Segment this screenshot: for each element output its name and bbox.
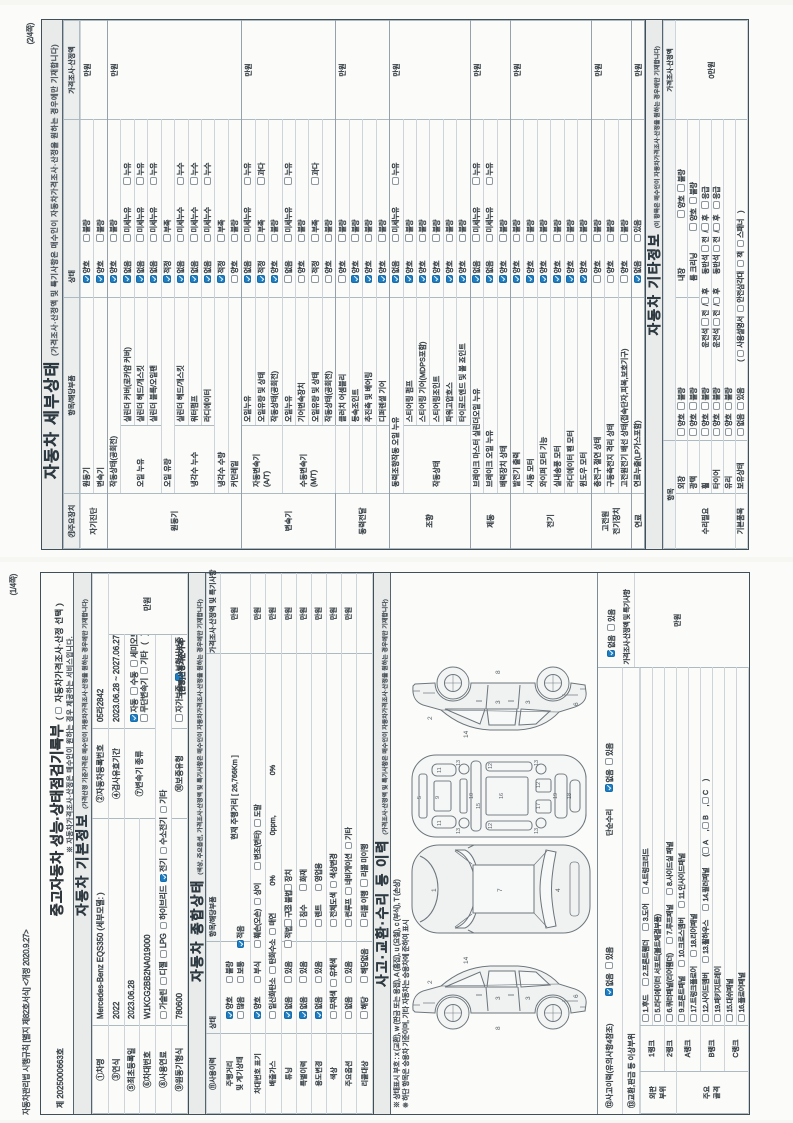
svg-text:12: 12	[536, 782, 542, 788]
svg-text:5: 5	[417, 796, 423, 799]
svg-text:11: 11	[437, 767, 443, 773]
svg-text:13: 13	[534, 760, 540, 766]
svg-text:9: 9	[435, 796, 441, 799]
svg-text:3: 3	[495, 996, 502, 1000]
svg-text:15: 15	[476, 803, 482, 809]
svg-text:4: 4	[555, 888, 562, 892]
svg-text:16: 16	[499, 793, 505, 799]
svg-text:2: 2	[427, 716, 434, 720]
svg-text:3: 3	[525, 700, 532, 704]
svg-text:1: 1	[431, 888, 438, 892]
svg-text:6: 6	[573, 994, 580, 998]
svg-text:6: 6	[573, 702, 580, 706]
svg-text:8: 8	[495, 1026, 502, 1030]
svg-text:18: 18	[567, 793, 573, 799]
svg-text:14: 14	[463, 730, 470, 738]
svg-text:19: 19	[553, 793, 559, 799]
svg-text:8: 8	[495, 670, 502, 674]
svg-text:12: 12	[488, 763, 494, 769]
svg-text:10: 10	[469, 793, 475, 799]
svg-text:3: 3	[525, 996, 532, 1000]
svg-text:17: 17	[536, 803, 542, 809]
svg-text:13: 13	[456, 760, 462, 766]
svg-text:11: 11	[437, 820, 443, 826]
svg-text:13: 13	[534, 828, 540, 834]
svg-text:2: 2	[427, 980, 434, 984]
svg-text:3: 3	[495, 700, 502, 704]
svg-text:7: 7	[497, 888, 504, 892]
svg-text:14: 14	[463, 956, 470, 964]
svg-text:13: 13	[456, 828, 462, 834]
svg-text:12: 12	[488, 823, 494, 829]
